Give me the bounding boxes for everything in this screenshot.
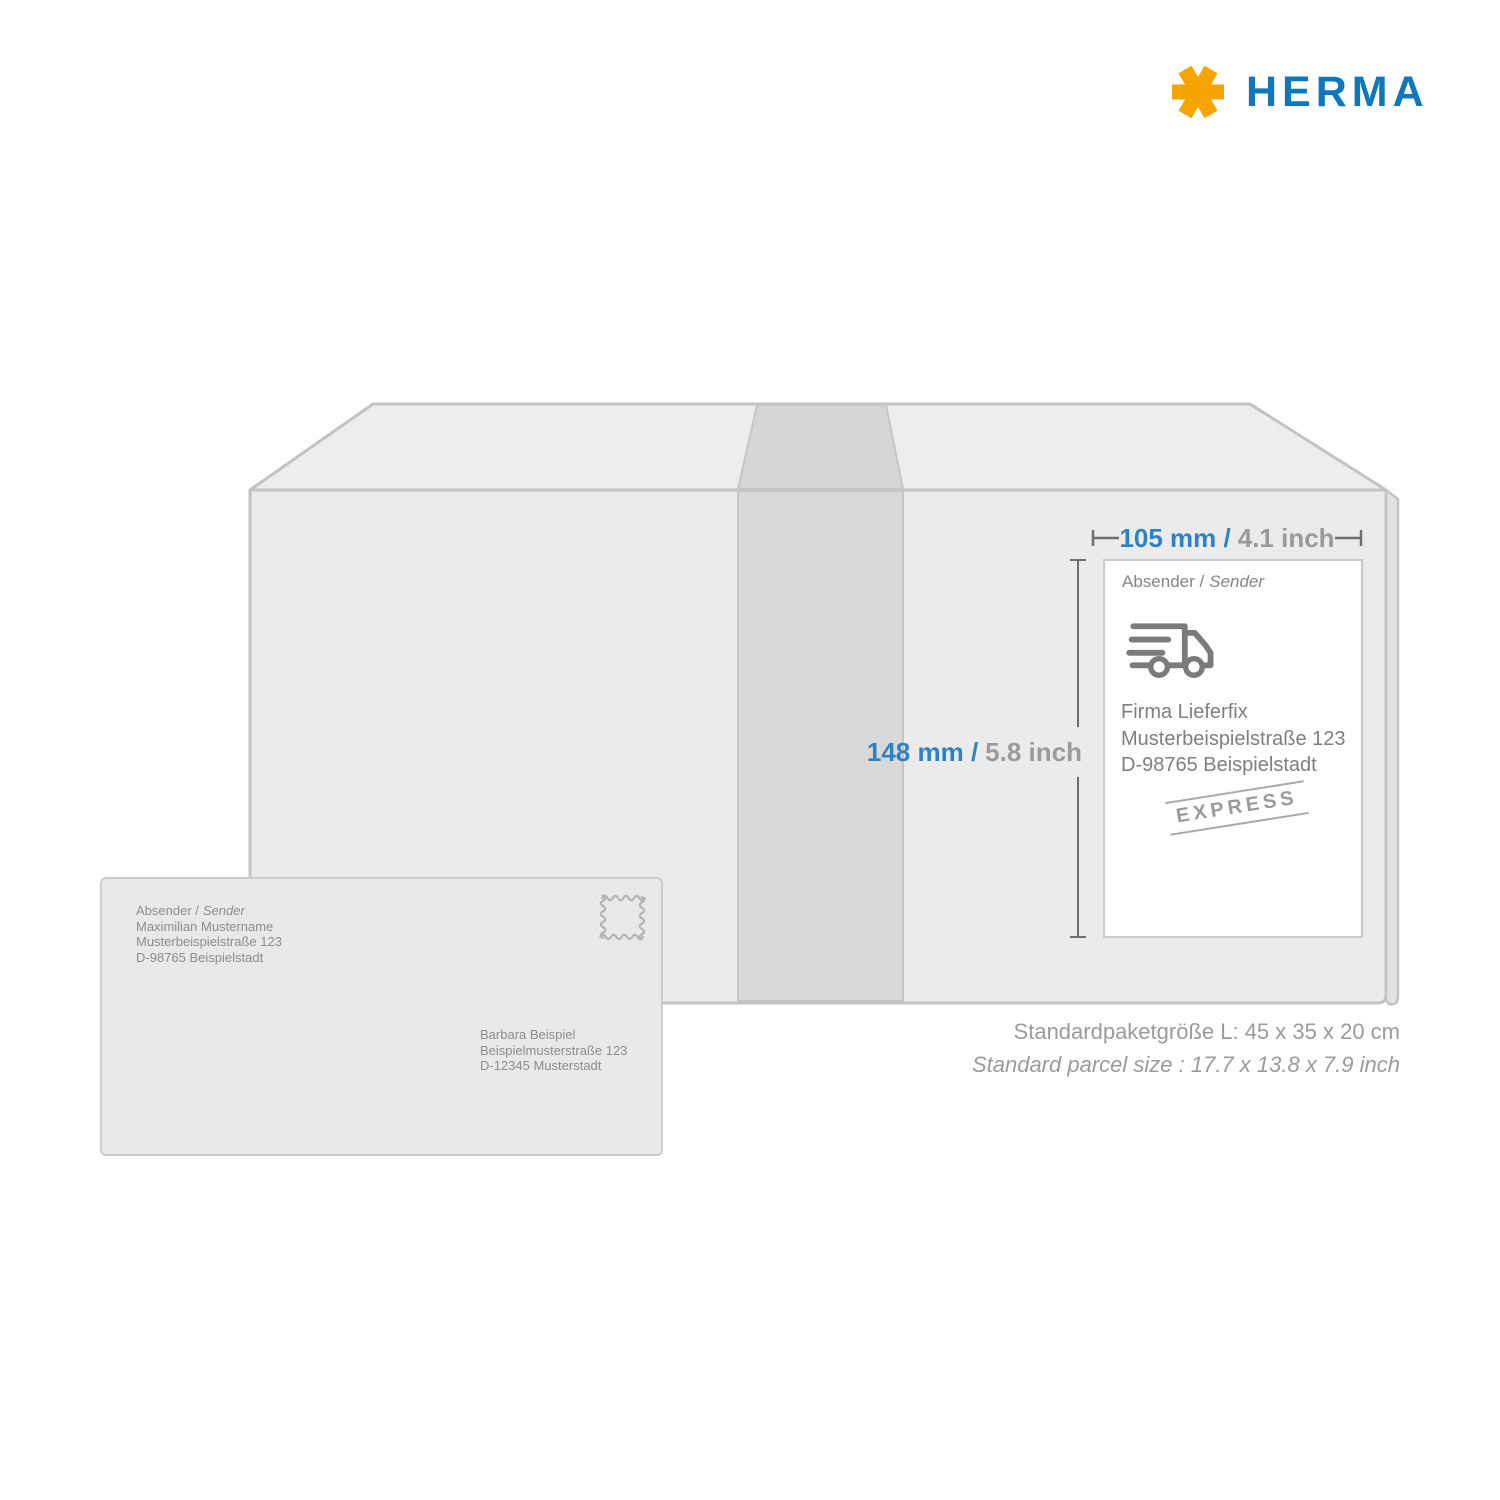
envelope-sender-address: Absender /Sender Maximilian Mustername M…	[136, 903, 282, 965]
parcel-size-imperial: Standard parcel size : 17.7 x 13.8 x 7.9…	[972, 1048, 1400, 1081]
width-dimension: 105 mm / 4.1 inch	[1091, 523, 1363, 553]
height-dimension-line-lower	[1077, 777, 1079, 938]
parcel-size-metric: Standardpaketgröße L: 45 x 35 x 20 cm	[972, 1015, 1400, 1048]
envelope-recipient-line: D-12345 Musterstadt	[480, 1058, 627, 1074]
parcel-tape-top	[738, 405, 903, 489]
envelope-sender-heading-italic: Sender	[203, 903, 245, 918]
label-sender-heading-text: Absender /	[1122, 572, 1204, 591]
herma-wordmark: HERMA	[1246, 64, 1429, 120]
herma-logo: HERMA	[1170, 64, 1429, 120]
label-address-line: Firma Lieferfix	[1121, 699, 1346, 726]
label-address: Firma Lieferfix Musterbeispielstraße 123…	[1121, 699, 1346, 779]
envelope-sender-heading: Absender /Sender	[136, 903, 282, 919]
envelope-recipient-line: Barbara Beispiel	[480, 1027, 627, 1043]
shipping-label: Absender /Sender Firma Lieferfix Musterb…	[1103, 559, 1363, 938]
dimension-tick-left-icon	[1091, 528, 1119, 548]
envelope-recipient-line: Beispielmusterstraße 123	[480, 1043, 627, 1059]
height-value-inch: 5.8 inch	[985, 737, 1082, 768]
envelope-sender-line: D-98765 Beispielstadt	[136, 950, 282, 966]
height-dimension: 148 mm / 5.8 inch	[867, 737, 1082, 768]
envelope-recipient-address: Barbara Beispiel Beispielmusterstraße 12…	[480, 1027, 627, 1074]
envelope: Absender /Sender Maximilian Mustername M…	[100, 877, 663, 1156]
height-value-mm: 148 mm /	[867, 737, 978, 768]
parcel-side-face	[1386, 490, 1398, 1004]
envelope-sender-heading-text: Absender /	[136, 903, 199, 918]
label-sender-heading: Absender /Sender	[1122, 572, 1264, 592]
label-sender-heading-italic: Sender	[1209, 572, 1264, 591]
label-address-line: D-98765 Beispielstadt	[1121, 752, 1346, 779]
width-value-mm: 105 mm /	[1119, 523, 1230, 554]
express-stamp: EXPRESS	[1165, 780, 1309, 835]
height-dimension-cap-bottom	[1070, 936, 1086, 938]
herma-asterisk-icon	[1170, 64, 1226, 120]
height-dimension-line-upper	[1077, 559, 1079, 727]
label-address-line: Musterbeispielstraße 123	[1121, 726, 1346, 753]
envelope-sender-line: Musterbeispielstraße 123	[136, 934, 282, 950]
width-value-inch: 4.1 inch	[1238, 523, 1335, 554]
postage-stamp-outline-icon	[596, 891, 649, 944]
dimension-tick-right-icon	[1335, 528, 1363, 548]
delivery-truck-icon	[1125, 610, 1233, 694]
envelope-sender-line: Maximilian Mustername	[136, 919, 282, 935]
parcel-size-caption: Standardpaketgröße L: 45 x 35 x 20 cm St…	[972, 1015, 1400, 1081]
product-illustration: 105 mm / 4.1 inch 148 mm / 5.8 inch Abse…	[0, 0, 1500, 1500]
